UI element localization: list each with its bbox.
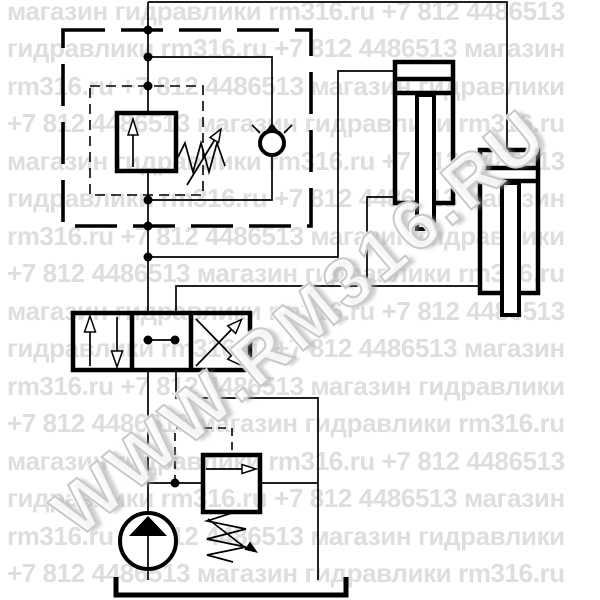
check-branch-upper [148,57,272,131]
hydraulic-schematic-page: магазин гидравлики rm316.ru +7 812 44865… [0,0,600,600]
parallel-arrow-down-head [112,351,123,367]
adjustment-arrowhead [210,129,221,143]
check-valve-ball [260,131,284,155]
relief-flow-arrowhead [242,465,256,474]
relief-adjustment-arrow [208,519,247,549]
check-branch-lower [148,155,272,200]
junction-dot [144,222,153,231]
junction-dot [144,196,153,205]
spring-icon [178,143,225,172]
parallel-arrow-up-head [85,316,96,332]
pressure-valve-body [117,113,176,171]
check-valve-direction-arrow [265,123,279,132]
cylinder-2-rod [502,183,519,315]
relief-valve-symbol [203,455,260,562]
junction-dot [144,253,153,262]
pressure-valve-symbol [117,113,225,185]
relief-adjustment-arrowhead [245,542,259,554]
junction-dot [144,26,153,35]
valve-assembly-boundary-box [90,86,203,195]
relief-spring-icon [207,513,246,562]
junction-dot [144,53,153,62]
directional-valve-dividers [132,313,191,370]
relief-valve-body [203,455,260,512]
junction-dot [144,82,153,91]
check-valve-symbol [252,123,292,155]
tank-symbol [116,577,346,595]
pump-symbol [120,513,176,580]
cylinder-1-piston [395,79,453,93]
flow-arrowhead [128,119,138,135]
